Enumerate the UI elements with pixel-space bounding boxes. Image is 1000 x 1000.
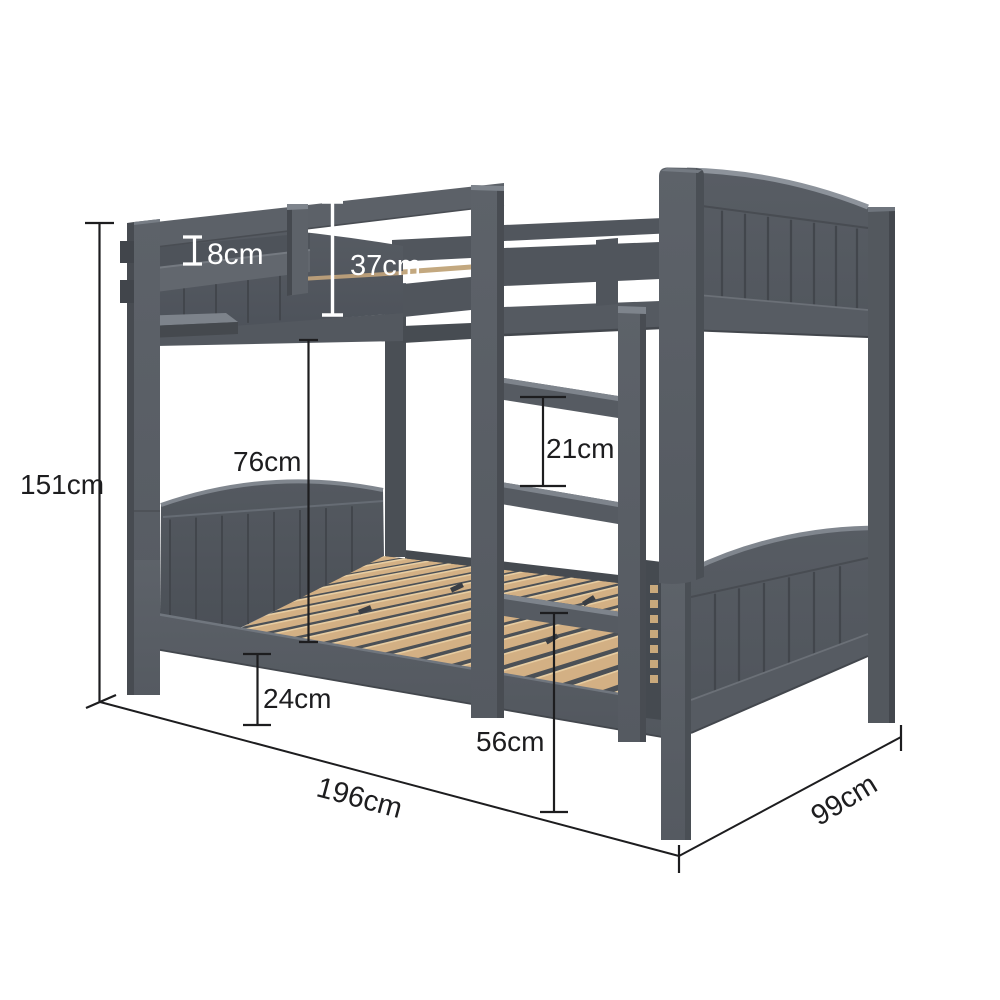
svg-text:99cm: 99cm [806, 768, 883, 832]
svg-text:24cm: 24cm [263, 683, 331, 714]
svg-text:151cm: 151cm [20, 469, 104, 500]
svg-text:21cm: 21cm [546, 433, 614, 464]
svg-text:37cm: 37cm [350, 250, 421, 282]
svg-text:76cm: 76cm [233, 446, 301, 477]
svg-text:8cm: 8cm [207, 238, 264, 271]
svg-text:56cm: 56cm [476, 726, 544, 757]
